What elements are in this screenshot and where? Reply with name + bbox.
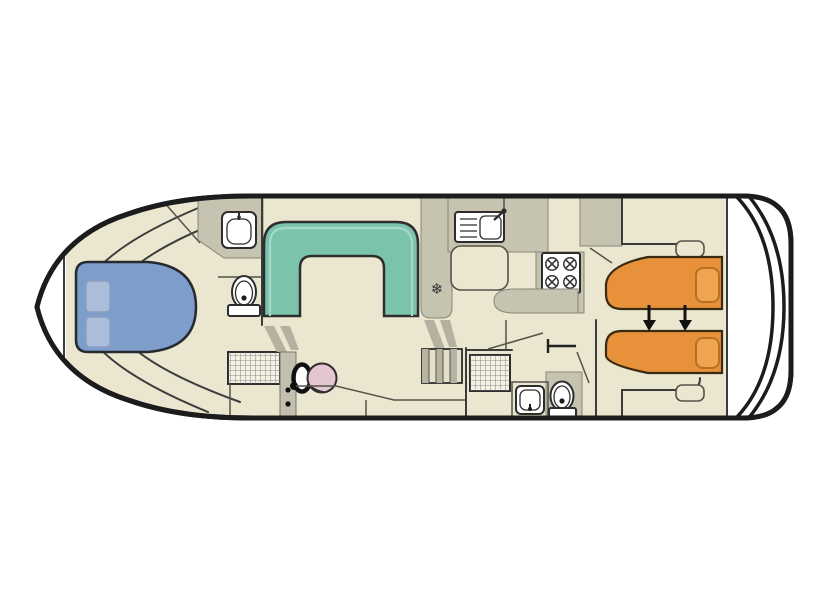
aft-locker bbox=[676, 241, 704, 257]
boat-floor-plan: ❄ bbox=[0, 0, 816, 612]
double-bed bbox=[76, 262, 196, 352]
stove bbox=[542, 253, 580, 293]
aft-locker bbox=[676, 385, 704, 401]
bow-shower bbox=[228, 352, 280, 384]
bed-pillow bbox=[86, 281, 110, 312]
bed-pillow bbox=[696, 268, 719, 302]
mid-shower bbox=[470, 355, 510, 391]
bow-washbasin bbox=[222, 212, 256, 248]
galley-worktop bbox=[451, 246, 508, 290]
fridge-icon: ❄ bbox=[431, 280, 444, 298]
bed-pillow bbox=[86, 317, 110, 347]
companionway-steps bbox=[422, 349, 462, 383]
wardrobe bbox=[580, 197, 622, 246]
bed-pillow bbox=[696, 338, 719, 368]
floor-plan-canvas: ❄ bbox=[0, 0, 816, 612]
helm-seat bbox=[308, 364, 337, 393]
aft-toilet bbox=[549, 382, 576, 418]
fridge: ❄ bbox=[421, 197, 452, 318]
galley-sink bbox=[455, 208, 507, 242]
aft-washbasin bbox=[512, 382, 548, 418]
galley-peninsula bbox=[494, 289, 578, 313]
